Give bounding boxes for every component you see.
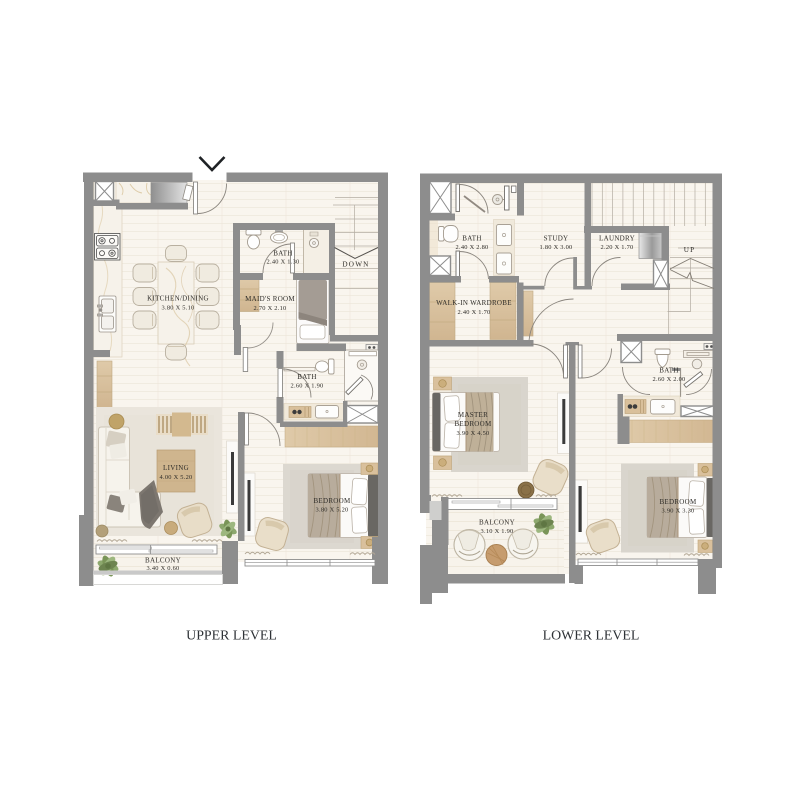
svg-text:BATH: BATH bbox=[462, 235, 481, 243]
svg-text:3.90 X 4.50: 3.90 X 4.50 bbox=[457, 430, 490, 437]
svg-text:MAID'S ROOM: MAID'S ROOM bbox=[245, 295, 295, 303]
svg-text:1.80 X 3.00: 1.80 X 3.00 bbox=[540, 244, 573, 251]
svg-text:UPPER LEVEL: UPPER LEVEL bbox=[186, 629, 277, 644]
svg-text:2.40 X 2.80: 2.40 X 2.80 bbox=[456, 244, 489, 251]
svg-text:DOWN: DOWN bbox=[342, 261, 369, 269]
svg-text:3.90 X 3.30: 3.90 X 3.30 bbox=[662, 508, 695, 515]
svg-text:KITCHEN/DINING: KITCHEN/DINING bbox=[147, 295, 209, 303]
svg-text:BATH: BATH bbox=[273, 250, 292, 258]
svg-text:2.20 X 1.70: 2.20 X 1.70 bbox=[601, 244, 634, 251]
svg-text:LAUNDRY: LAUNDRY bbox=[599, 235, 635, 243]
svg-text:BEDROOM: BEDROOM bbox=[659, 498, 697, 506]
svg-text:3.80 X 5.20: 3.80 X 5.20 bbox=[316, 507, 349, 514]
svg-text:2.40 X 1.70: 2.40 X 1.70 bbox=[458, 309, 491, 316]
svg-text:3.10 X 1.90: 3.10 X 1.90 bbox=[481, 528, 514, 535]
svg-text:BEDROOM: BEDROOM bbox=[313, 497, 351, 505]
svg-text:WALK-IN WARDROBE: WALK-IN WARDROBE bbox=[436, 299, 512, 307]
svg-text:3.40 X 0.60: 3.40 X 0.60 bbox=[147, 565, 180, 572]
svg-text:BATH: BATH bbox=[659, 367, 678, 375]
svg-text:2.60 X 2.00: 2.60 X 2.00 bbox=[653, 376, 686, 383]
svg-text:4.00 X 5.20: 4.00 X 5.20 bbox=[160, 474, 193, 481]
svg-text:2.40 X 1.30: 2.40 X 1.30 bbox=[267, 259, 300, 266]
svg-text:2.60 X 1.90: 2.60 X 1.90 bbox=[291, 383, 324, 390]
svg-text:STUDY: STUDY bbox=[544, 235, 569, 243]
svg-text:BALCONY: BALCONY bbox=[145, 557, 181, 565]
svg-text:LIVING: LIVING bbox=[163, 464, 189, 472]
svg-text:2.70 X 2.10: 2.70 X 2.10 bbox=[254, 305, 287, 312]
svg-text:BEDROOM: BEDROOM bbox=[454, 420, 492, 428]
svg-text:BATH: BATH bbox=[297, 373, 316, 381]
svg-text:MASTER: MASTER bbox=[458, 411, 488, 419]
svg-text:UP: UP bbox=[684, 246, 696, 254]
svg-text:3.80 X 5.10: 3.80 X 5.10 bbox=[162, 305, 195, 312]
svg-text:LOWER LEVEL: LOWER LEVEL bbox=[543, 629, 640, 644]
svg-text:BALCONY: BALCONY bbox=[479, 519, 515, 527]
